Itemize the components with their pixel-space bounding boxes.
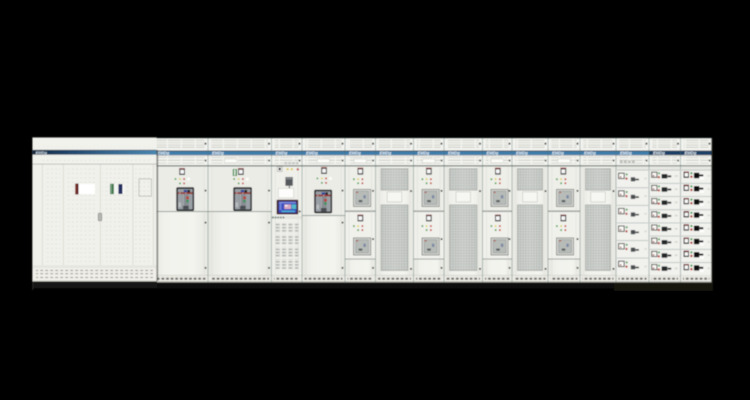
svg-text:EMDg: EMDg xyxy=(212,150,224,155)
svg-text:EMDg: EMDg xyxy=(516,150,528,155)
svg-text:EMDg: EMDg xyxy=(306,150,318,155)
svg-text:EMDg: EMDg xyxy=(276,150,288,155)
svg-text:EMDg: EMDg xyxy=(36,150,48,155)
svg-text:EMDg: EMDg xyxy=(620,150,632,155)
svg-text:EMDg: EMDg xyxy=(685,150,697,155)
svg-text:EMDg: EMDg xyxy=(158,150,170,155)
svg-text:EMDg: EMDg xyxy=(380,150,392,155)
svg-text:EMDg: EMDg xyxy=(448,150,460,155)
svg-text:EMDg: EMDg xyxy=(418,150,430,155)
svg-text:EMDg: EMDg xyxy=(552,150,564,155)
svg-text:EMDg: EMDg xyxy=(584,150,596,155)
svg-text:EMDg: EMDg xyxy=(349,150,361,155)
svg-text:EMDg: EMDg xyxy=(653,150,665,155)
svg-text:EMDg: EMDg xyxy=(487,150,499,155)
